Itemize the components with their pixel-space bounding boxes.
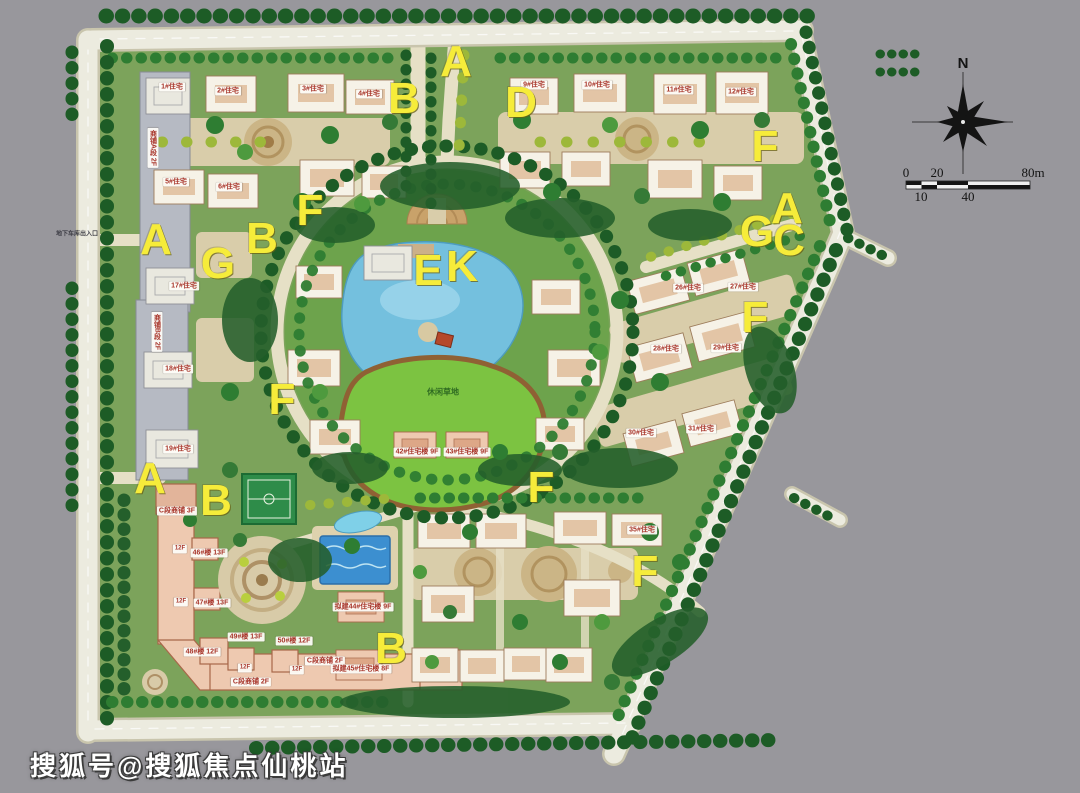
zone-letter: F xyxy=(297,189,324,233)
building-label: 31#住宅 xyxy=(686,425,716,434)
building-label: 4#住宅 xyxy=(356,90,382,99)
building-label: 47#楼 13F xyxy=(194,599,231,608)
building-label: C段商铺 3F xyxy=(157,507,197,516)
zone-letter: E xyxy=(413,249,442,293)
garage-entrance-label: 地下车库出入口 xyxy=(54,231,100,240)
central-lawn xyxy=(340,357,544,510)
building-label: 11#住宅 xyxy=(664,86,693,95)
building-label: 2#住宅 xyxy=(215,87,241,96)
zone-letter: C xyxy=(773,219,805,263)
building-label: 12F xyxy=(238,664,252,673)
building-label: 35#住宅 xyxy=(627,526,657,535)
building-label: 28#住宅 xyxy=(651,345,681,354)
zone-letter: B xyxy=(200,479,232,523)
zone-letter: F xyxy=(742,296,769,340)
site-plan-screenshot: N 0 20 80m 10 40 1#住宅 2#住宅 3#住宅 4#住宅 5#住… xyxy=(0,0,1080,793)
basketball-court xyxy=(242,474,296,524)
zone-letter: G xyxy=(740,210,774,254)
zone-letter: F xyxy=(632,550,659,594)
building-label: 5#住宅 xyxy=(163,178,189,187)
building-label: 27#住宅 xyxy=(728,283,758,292)
watermark: 搜狐号@搜狐焦点仙桃站 xyxy=(30,746,348,783)
zone-letter: K xyxy=(446,245,478,289)
building-label: 12F xyxy=(173,545,187,554)
zone-letter: F xyxy=(269,378,296,422)
building-label: 12F xyxy=(174,598,188,607)
zone-letter: B xyxy=(388,77,420,121)
building-label: 48#楼 12F xyxy=(184,648,221,657)
zone-letter: D xyxy=(505,81,537,125)
site-plan-map: N 0 20 80m 10 40 xyxy=(0,0,1080,793)
zone-letter: B xyxy=(375,627,407,671)
building-label: 12F xyxy=(290,666,304,675)
building-label: 10#住宅 xyxy=(582,81,612,90)
clubhouse xyxy=(364,246,412,280)
zone-letter: G xyxy=(201,242,235,286)
building-label: 42#住宅楼 9F xyxy=(394,448,441,457)
zone-letter: A xyxy=(134,457,166,501)
scale-40: 40 xyxy=(962,189,975,204)
building-label: 商铺B段 2F xyxy=(152,312,163,352)
building-label: 6#住宅 xyxy=(216,183,242,192)
lawn-label: 休闲草地 xyxy=(425,388,461,397)
compass-rose: N xyxy=(912,55,1013,174)
scale-10: 10 xyxy=(915,189,928,204)
scale-80m: 80m xyxy=(1021,165,1044,180)
building-label: 19#住宅 xyxy=(163,445,193,454)
building-label: 12#住宅 xyxy=(726,88,756,97)
building-label: 29#住宅 xyxy=(711,344,741,353)
building-label: 30#住宅 xyxy=(626,429,656,438)
scale-0: 0 xyxy=(903,165,910,180)
building-label: 26#住宅 xyxy=(673,284,703,293)
building-label: 拟建44#住宅楼 9F xyxy=(333,603,394,612)
zone-letter: F xyxy=(752,125,779,169)
building-label: 商铺A段 2F xyxy=(148,128,159,168)
zone-letter: B xyxy=(246,217,278,261)
scale-20: 20 xyxy=(931,165,944,180)
scale-bar: 0 20 80m 10 40 xyxy=(903,165,1045,204)
building-label: 46#楼 13F xyxy=(191,549,228,558)
building-label: 49#楼 13F xyxy=(228,633,265,642)
building-label: 1#住宅 xyxy=(159,83,185,92)
building-label: 50#楼 12F xyxy=(276,637,313,646)
building-label: 3#住宅 xyxy=(300,85,326,94)
zone-letter: A xyxy=(140,218,172,262)
building-label: 18#住宅 xyxy=(163,365,193,374)
building-label: C段商铺 2F xyxy=(231,678,271,687)
zone-letter: F xyxy=(528,466,555,510)
building-label: 17#住宅 xyxy=(169,282,199,291)
building-label: 43#住宅楼 9F xyxy=(444,448,491,457)
compass-north-label: N xyxy=(958,55,969,72)
zone-letter: A xyxy=(440,40,472,84)
